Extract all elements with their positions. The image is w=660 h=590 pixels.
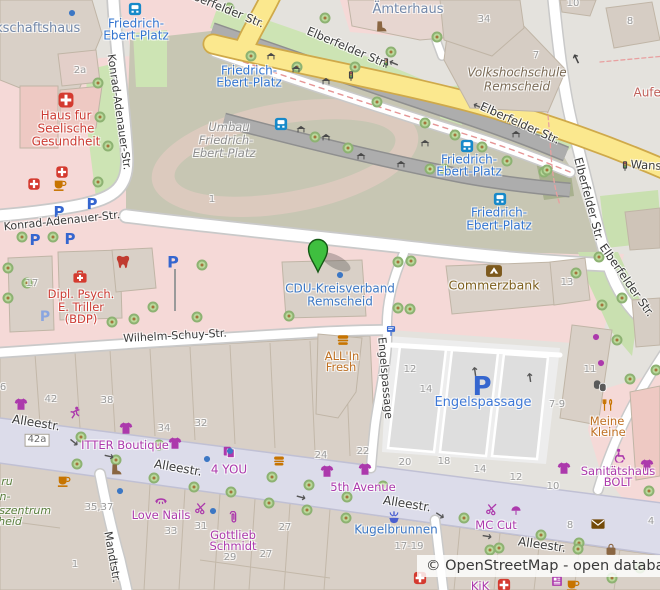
tree-icon [393, 257, 404, 268]
tree-icon [72, 459, 83, 470]
tree-icon [406, 256, 417, 267]
traffic-signal-icon [620, 161, 631, 172]
bus-shelter-icon [321, 133, 332, 144]
stationery-clip-icon [226, 511, 240, 525]
tree-icon [571, 268, 582, 279]
tree-icon [439, 164, 450, 175]
tree-icon [343, 143, 354, 154]
poi-dot [69, 10, 76, 17]
bus-shelter-icon [266, 52, 277, 63]
tree-icon [224, 3, 235, 14]
restaurant-utensils-icon [601, 398, 615, 412]
info-board-icon [385, 325, 398, 338]
tree-icon [320, 13, 331, 24]
tree-icon [129, 314, 140, 325]
tree-icon [573, 544, 584, 555]
doctor-case-icon [73, 270, 88, 285]
tree-icon [48, 232, 59, 243]
tree-icon [17, 232, 28, 243]
beauty-eyelash-icon [154, 493, 168, 507]
tree-icon [450, 130, 461, 141]
map-marker[interactable] [294, 232, 358, 278]
clothes-shop-icon [320, 464, 334, 478]
bus-shelter-icon [356, 152, 367, 163]
tree-icon [420, 118, 431, 129]
fastfood-burger-icon [336, 333, 350, 347]
tree-icon [342, 492, 353, 503]
tree-icon [372, 97, 383, 108]
fastfood-burger-icon [273, 455, 286, 468]
parking-icon: P [167, 253, 179, 272]
bus-stop-icon [274, 117, 288, 131]
tree-icon [341, 513, 352, 524]
bus-shelter-icon [291, 65, 302, 76]
tree-icon [246, 51, 257, 62]
bus-shelter-icon [396, 160, 407, 171]
parking-icon: P [65, 230, 76, 248]
health-cross-icon [28, 178, 41, 191]
traffic-signal-icon [346, 71, 357, 82]
cafe-cup-icon [53, 178, 67, 192]
parking-icon: P [30, 231, 41, 249]
map-canvas[interactable]: PPPPPPP←←→→→→→↑↑↑erkschaftshausFriedrich… [0, 0, 660, 590]
health-cross-icon [56, 166, 69, 179]
tree-icon [393, 303, 404, 314]
parking-icon: P [40, 309, 50, 325]
cafe-cup-icon [57, 474, 71, 488]
poi-dot [598, 360, 605, 367]
tree-icon [485, 545, 496, 556]
tree-icon [542, 165, 553, 176]
hairdresser-scissors-icon [195, 502, 208, 515]
tree-icon [148, 302, 159, 313]
parking-icon: P [87, 195, 98, 213]
bus-stop-icon [460, 139, 474, 153]
tree-icon [149, 473, 160, 484]
map-base-layer [0, 0, 660, 590]
attribution-license-link[interactable]: © OpenStreetMap - open database license [426, 558, 660, 574]
tree-icon [3, 293, 14, 304]
commerzbank-logo-icon [486, 263, 503, 280]
shoe-shop-icon [109, 463, 123, 477]
tree-icon [594, 252, 605, 263]
clothes-shop-icon [119, 421, 133, 435]
tree-icon [477, 142, 488, 153]
tree-icon [107, 317, 118, 328]
tree-icon [425, 164, 436, 175]
health-cross-icon [497, 578, 511, 590]
tree-icon [103, 141, 114, 152]
tree-icon [310, 132, 321, 143]
bus-stop-icon [493, 192, 507, 206]
tree-icon [267, 472, 278, 483]
poi-dot [227, 448, 234, 455]
oneway-arrow-icon: ↑ [469, 364, 481, 379]
tree-icon [93, 177, 104, 188]
tree-icon [459, 513, 470, 524]
tree-icon [226, 487, 237, 498]
tree-icon [378, 481, 389, 492]
clothes-shop-icon [358, 462, 372, 476]
fountain-icon [387, 510, 402, 525]
bus-shelter-icon [511, 130, 522, 141]
cafe-cup-icon [566, 578, 580, 590]
tree-icon [3, 263, 14, 274]
tree-icon [189, 482, 200, 493]
tree-icon [651, 365, 660, 376]
poi-dot [210, 508, 217, 515]
wheelchair-icon [613, 448, 628, 463]
bus-shelter-icon [296, 125, 307, 136]
health-cross-icon [58, 92, 75, 109]
tree-icon [95, 112, 106, 123]
attribution-bar: © OpenStreetMap - open database license [417, 555, 660, 577]
tree-icon [197, 260, 208, 271]
bus-shelter-icon [321, 77, 332, 88]
post-envelope-icon [591, 517, 606, 532]
clothes-shop-icon [557, 461, 571, 475]
tree-icon [625, 374, 636, 385]
tree-icon [597, 300, 608, 311]
poi-dot [204, 456, 211, 463]
bus-shelter-icon [420, 139, 431, 150]
tree-icon [264, 498, 275, 509]
tree-icon [154, 440, 165, 451]
tree-icon [93, 78, 104, 89]
parking-icon: P [54, 203, 65, 221]
tree-icon [284, 311, 295, 322]
tree-icon [432, 32, 443, 43]
clothes-shop-icon [168, 436, 182, 450]
clothes-shop-icon [640, 458, 654, 472]
tree-icon [22, 278, 33, 289]
tree-icon [302, 505, 313, 516]
theatre-masks-icon [593, 379, 608, 394]
tree-icon [612, 335, 623, 346]
tree-icon [617, 293, 628, 304]
tree-icon [192, 312, 203, 323]
poi-dot [117, 488, 124, 495]
poi-dot [593, 334, 600, 341]
tree-icon [502, 156, 513, 167]
salon-awning-icon [510, 504, 522, 516]
sports-runner-icon [68, 406, 82, 420]
tree-icon [536, 530, 547, 541]
tree-icon [644, 486, 655, 497]
bus-stop-icon [128, 2, 142, 16]
marker-pin [309, 240, 328, 273]
dentist-tooth-icon [116, 255, 131, 270]
tree-icon [304, 480, 315, 491]
oneway-arrow-icon: ↑ [524, 370, 536, 385]
clothes-shop-icon [14, 397, 28, 411]
shoe-shop-icon [374, 20, 388, 34]
parking-pole [174, 269, 176, 311]
hairdresser-scissors-icon [486, 503, 499, 516]
tree-icon [405, 304, 416, 315]
